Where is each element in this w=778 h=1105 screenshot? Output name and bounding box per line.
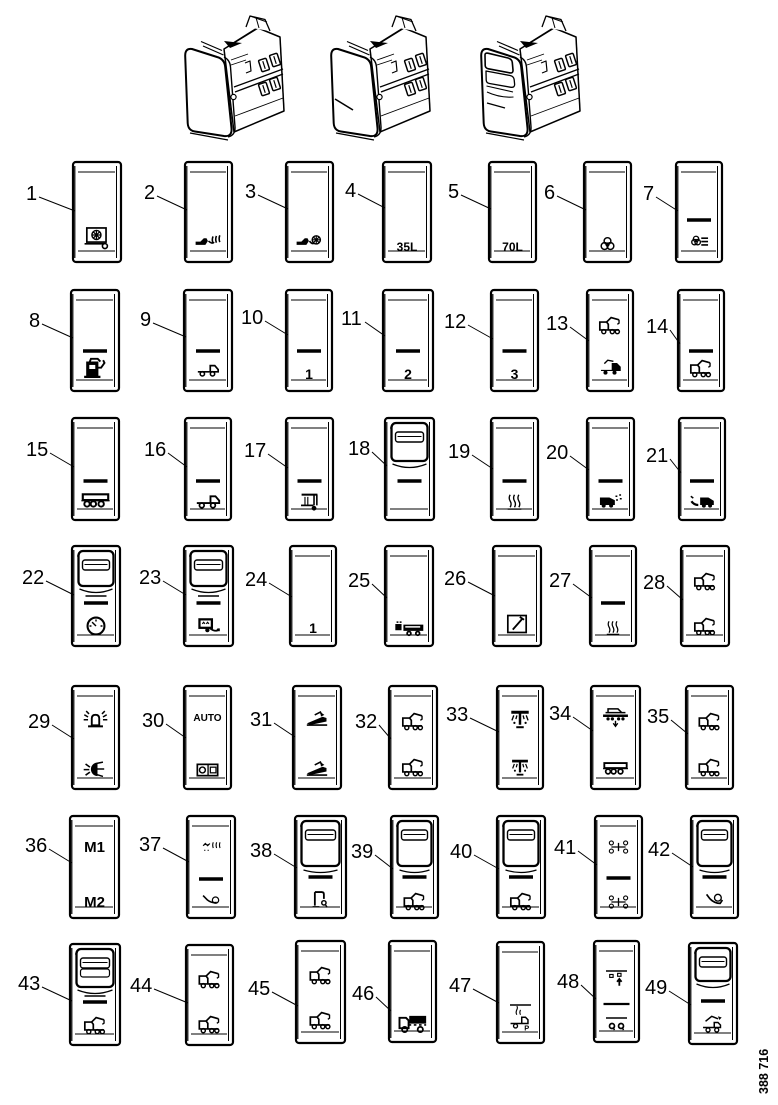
svg-text:M2: M2 [84, 894, 105, 911]
svg-text:45: 45 [248, 978, 270, 1000]
svg-text:7: 7 [643, 183, 654, 205]
svg-text:47: 47 [449, 975, 471, 997]
svg-text:48: 48 [557, 971, 579, 993]
svg-text:27: 27 [549, 570, 571, 592]
svg-text:15: 15 [26, 439, 48, 461]
svg-text:1: 1 [305, 366, 313, 382]
svg-text:20: 20 [546, 442, 568, 464]
svg-text:28: 28 [643, 572, 665, 594]
svg-text:1: 1 [309, 620, 317, 636]
svg-text:30: 30 [142, 710, 164, 732]
svg-text:40: 40 [450, 841, 472, 863]
svg-text:2: 2 [404, 366, 412, 382]
svg-text:6: 6 [544, 182, 555, 204]
svg-text:38: 38 [250, 840, 272, 862]
svg-text:8: 8 [29, 310, 40, 332]
svg-text:17: 17 [244, 440, 266, 462]
svg-text:46: 46 [352, 983, 374, 1005]
svg-text:33: 33 [446, 704, 468, 726]
svg-text:35L: 35L [397, 240, 418, 254]
svg-text:42: 42 [648, 839, 670, 861]
svg-text:14: 14 [646, 316, 668, 338]
svg-text:19: 19 [448, 441, 470, 463]
svg-text:16: 16 [144, 439, 166, 461]
svg-text:3: 3 [511, 366, 519, 382]
svg-text:25: 25 [348, 570, 370, 592]
svg-text:36: 36 [25, 835, 47, 857]
svg-text:4: 4 [345, 180, 356, 202]
svg-text:22: 22 [22, 567, 44, 589]
svg-text:M1: M1 [84, 839, 105, 856]
svg-text:43: 43 [18, 973, 40, 995]
svg-text:70L: 70L [502, 240, 523, 254]
svg-text:21: 21 [646, 445, 668, 467]
svg-text:13: 13 [546, 313, 568, 335]
svg-text:26: 26 [444, 568, 466, 590]
svg-text:11: 11 [341, 308, 362, 330]
svg-text:29: 29 [28, 711, 50, 733]
svg-text:2: 2 [144, 182, 155, 204]
svg-text:10: 10 [241, 307, 263, 329]
svg-text:41: 41 [554, 837, 576, 859]
svg-text:32: 32 [355, 711, 377, 733]
svg-text:34: 34 [549, 703, 571, 725]
svg-text:9: 9 [140, 309, 151, 331]
svg-text:5: 5 [448, 181, 459, 203]
svg-text:18: 18 [348, 438, 370, 460]
svg-text:12: 12 [444, 311, 466, 333]
svg-text:44: 44 [130, 975, 152, 997]
svg-text:3: 3 [245, 181, 256, 203]
svg-text:31: 31 [250, 709, 272, 731]
svg-text:AUTO: AUTO [193, 713, 221, 724]
svg-text:39: 39 [351, 841, 373, 863]
svg-text:24: 24 [245, 569, 267, 591]
svg-text:1: 1 [26, 183, 37, 205]
svg-text:35: 35 [647, 706, 669, 728]
svg-text:23: 23 [139, 567, 161, 589]
svg-text:49: 49 [645, 977, 667, 999]
svg-text:37: 37 [139, 834, 161, 856]
svg-text:388 716: 388 716 [757, 1049, 771, 1094]
